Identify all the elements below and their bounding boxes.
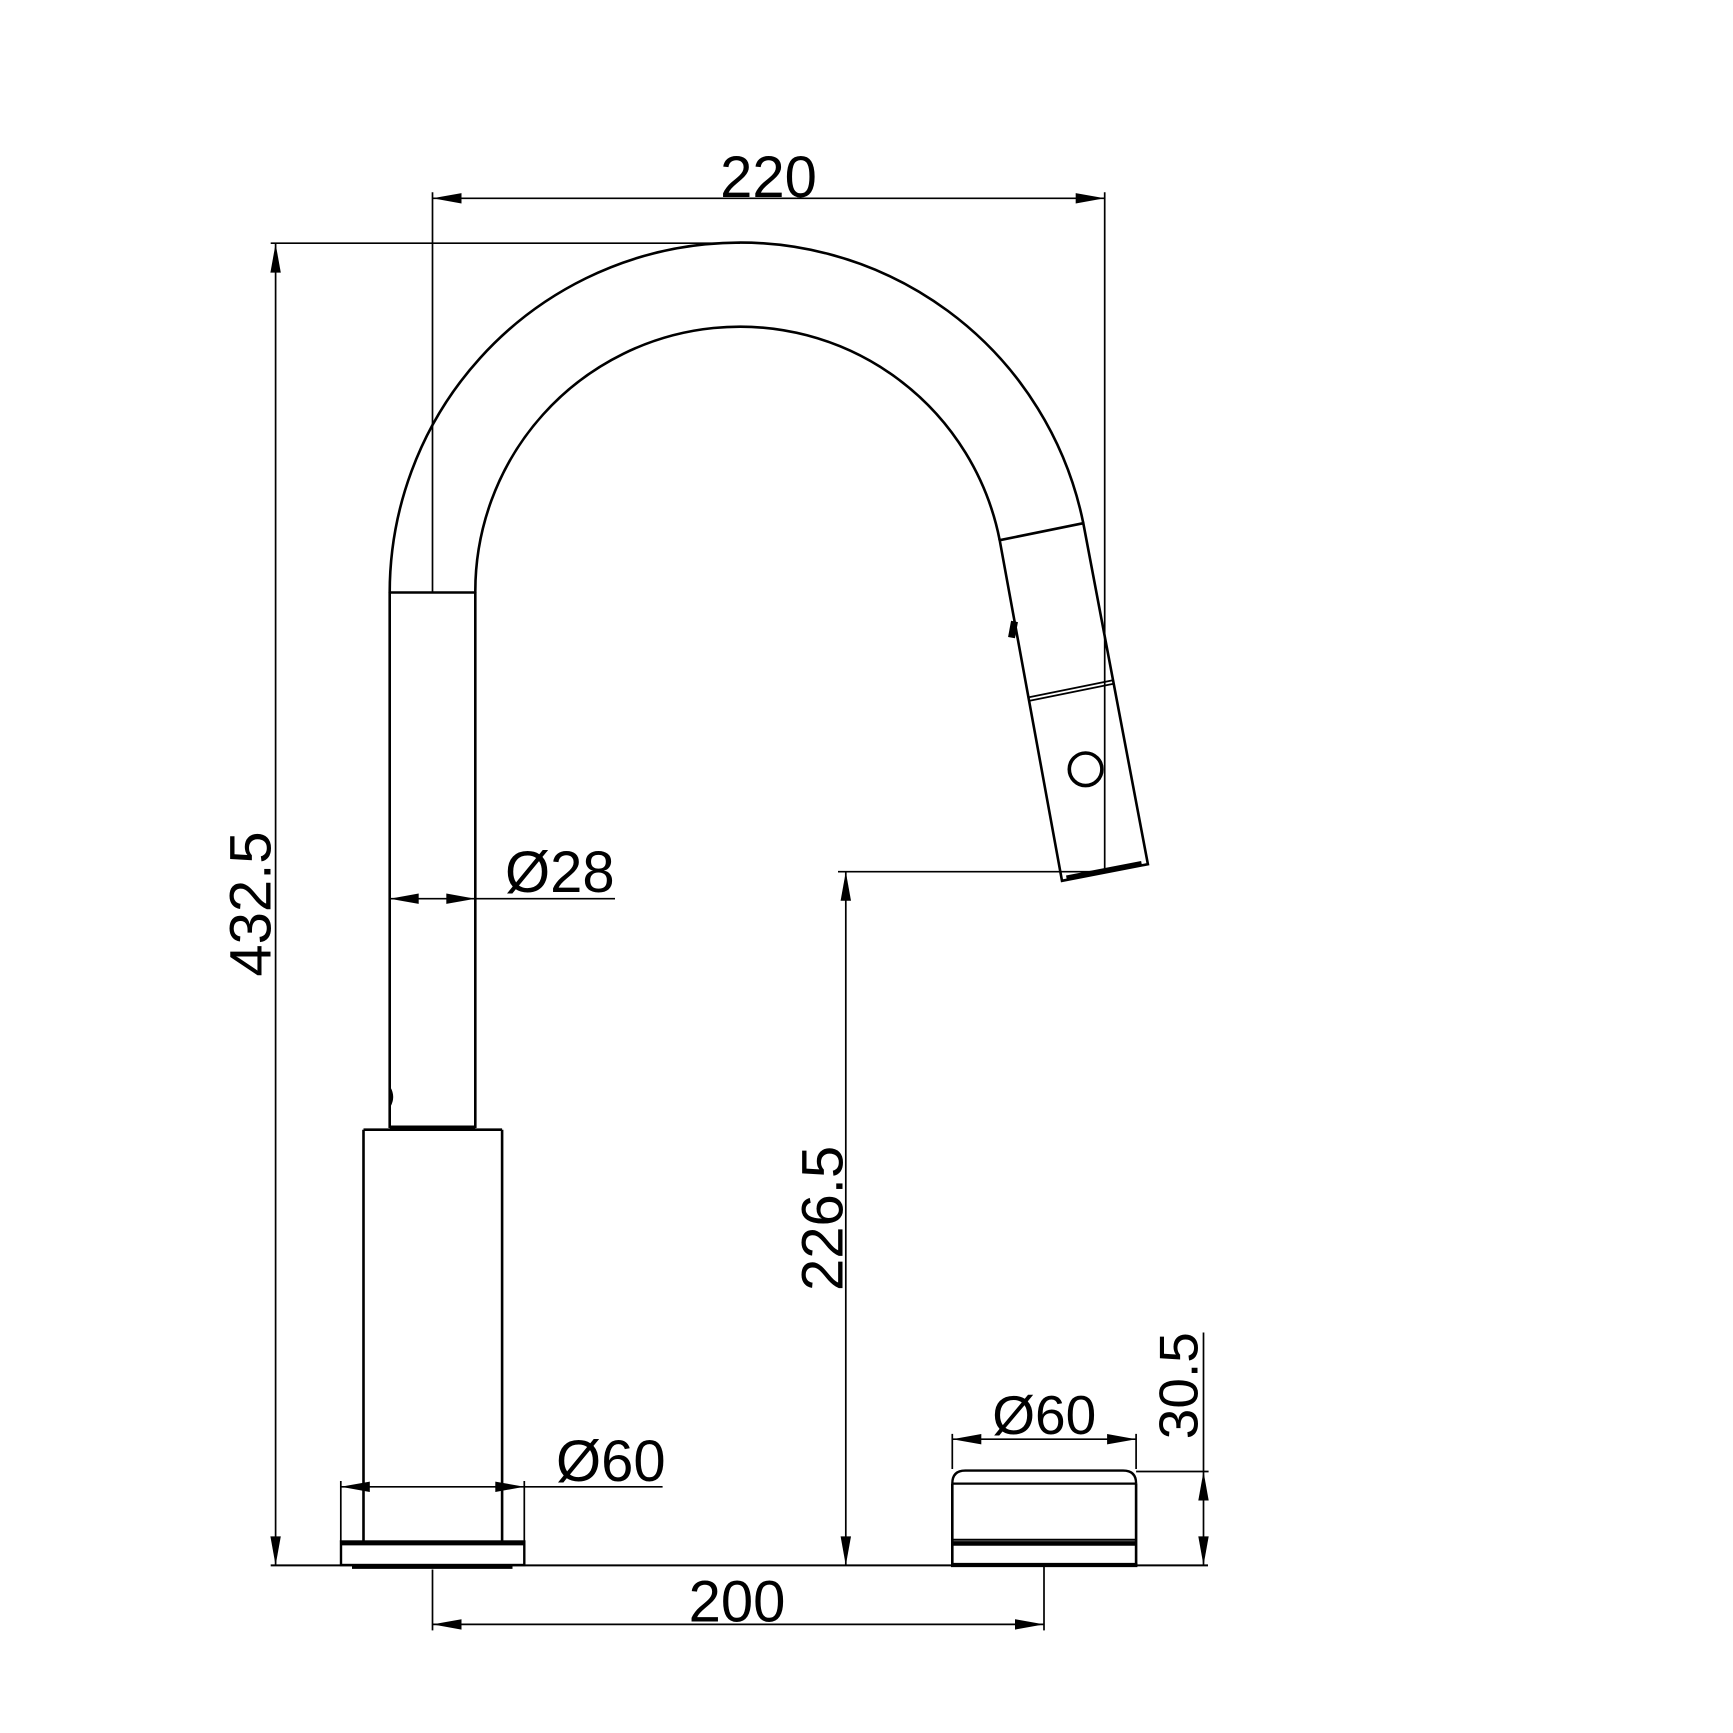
svg-text:220: 220 [720,145,817,210]
svg-text:Ø28: Ø28 [505,840,615,905]
svg-text:30.5: 30.5 [1148,1332,1210,1439]
svg-text:432.5: 432.5 [219,831,284,976]
svg-text:Ø60: Ø60 [992,1384,1096,1446]
svg-text:Ø60: Ø60 [556,1429,666,1494]
svg-text:200: 200 [689,1570,786,1635]
svg-text:226.5: 226.5 [791,1146,856,1291]
